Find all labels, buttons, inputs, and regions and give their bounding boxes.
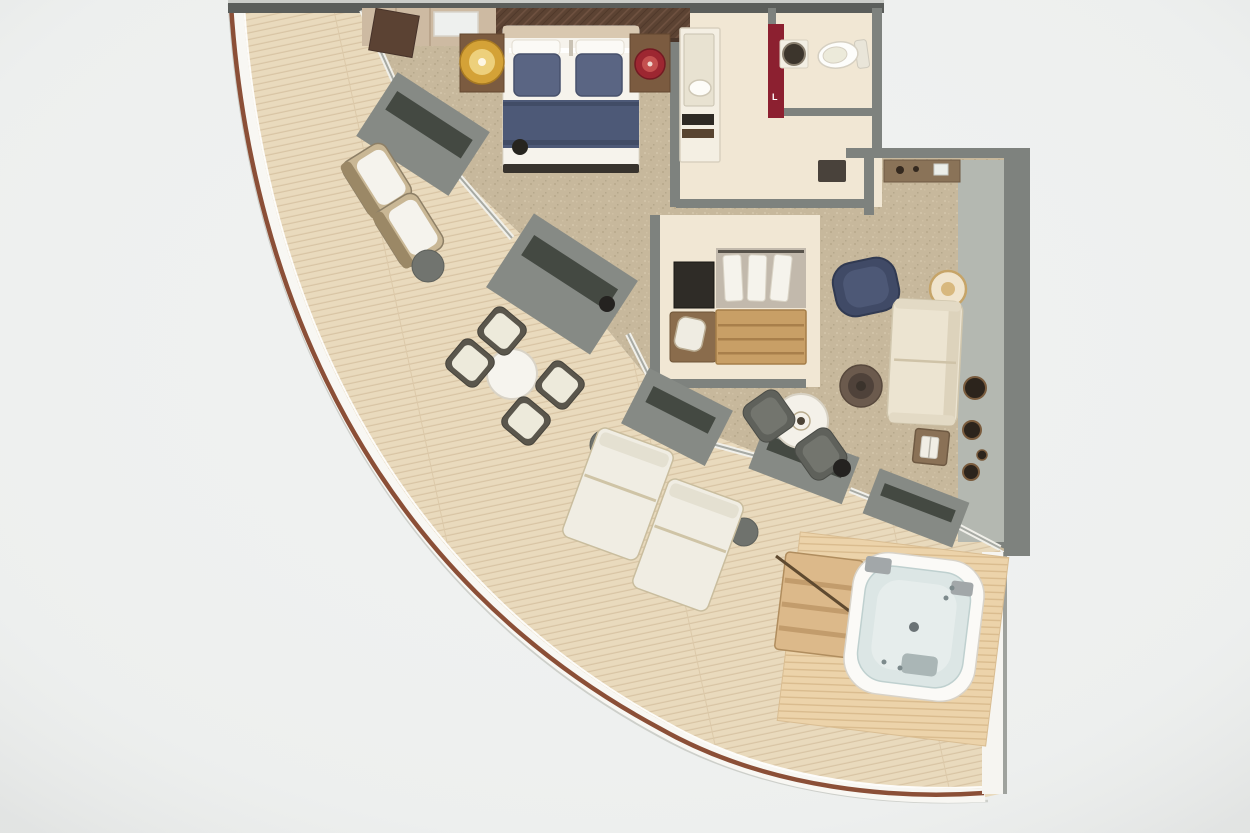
whirlpool-corner-pad-1 (864, 556, 892, 575)
deck-black-stool-top (512, 139, 528, 155)
living-sideboard (884, 160, 960, 182)
whirlpool-jet-1 (882, 660, 887, 665)
red-accent-wall (768, 24, 784, 118)
cream-floor-lamp-top (941, 282, 955, 296)
bed-runner-ornament (569, 40, 573, 56)
living-top-wall (846, 148, 1030, 158)
bed-throw-fold-top (503, 102, 639, 106)
wc-round-sink (783, 43, 805, 65)
red-wall-letter: L (772, 92, 778, 102)
sideboard-decor-tray (934, 164, 948, 175)
sideboard-decor-1 (896, 166, 904, 174)
floor-plan-canvas: L (0, 0, 1250, 833)
media-wall-decor-4 (963, 464, 979, 480)
whirlpool-jet-3 (944, 596, 949, 601)
media-wall-decor-3 (977, 450, 987, 460)
bedroom-corner-cabinet (369, 8, 420, 57)
vanity-toiletries-dark (682, 114, 714, 125)
round-ottoman-button (856, 381, 866, 391)
entry-door-mat (818, 160, 846, 182)
hanging-garment-2 (747, 255, 767, 302)
whirlpool-jet-2 (898, 666, 903, 671)
corridor-right-wall (864, 153, 874, 215)
media-wall-decor-1 (964, 377, 986, 399)
whirlpool-jet-4 (950, 586, 955, 591)
bed-headboard (503, 26, 639, 38)
red-table-lamp-finial (648, 62, 653, 67)
deck-door-stool (599, 296, 615, 312)
closet-dresser (716, 310, 806, 364)
bed-pillow-white-left (512, 40, 560, 55)
indoor-table-centerpiece (797, 417, 805, 425)
closet-tv-panel (674, 262, 714, 308)
ceiling-light-panel (434, 12, 478, 36)
bed-pillow-navy-left (514, 54, 560, 96)
suite-floor-plan: L (0, 0, 1250, 833)
indoor-black-stool (833, 459, 851, 477)
deck-side-table (412, 250, 444, 282)
whirlpool-drain (909, 622, 919, 632)
hanging-garment-1 (723, 255, 743, 302)
vanity-toiletries-wood (682, 129, 714, 138)
dresser-slat-3 (718, 352, 804, 355)
bed-pillow-navy-right (576, 54, 622, 96)
wc-bottom-wall (776, 108, 882, 116)
media-wall-strip (958, 160, 1004, 542)
gold-table-lamp-finial (478, 58, 486, 66)
bed-foot-base (503, 164, 639, 173)
media-wall-decor-2 (963, 421, 981, 439)
closet-left-wall (650, 215, 660, 385)
vanity-sink (689, 80, 711, 96)
living-right-wall (1004, 148, 1030, 556)
closet-desk-chair (673, 315, 707, 352)
wardrobe-rod (718, 250, 804, 253)
sideboard-decor-2 (913, 166, 919, 172)
deck-dining-table (487, 349, 537, 399)
dresser-slat-2 (718, 338, 804, 341)
suite-right-wall-top (872, 8, 882, 155)
dresser-slat-1 (718, 324, 804, 327)
dressing-bottom-wall (676, 199, 866, 208)
bed-pillow-white-right (576, 40, 624, 55)
